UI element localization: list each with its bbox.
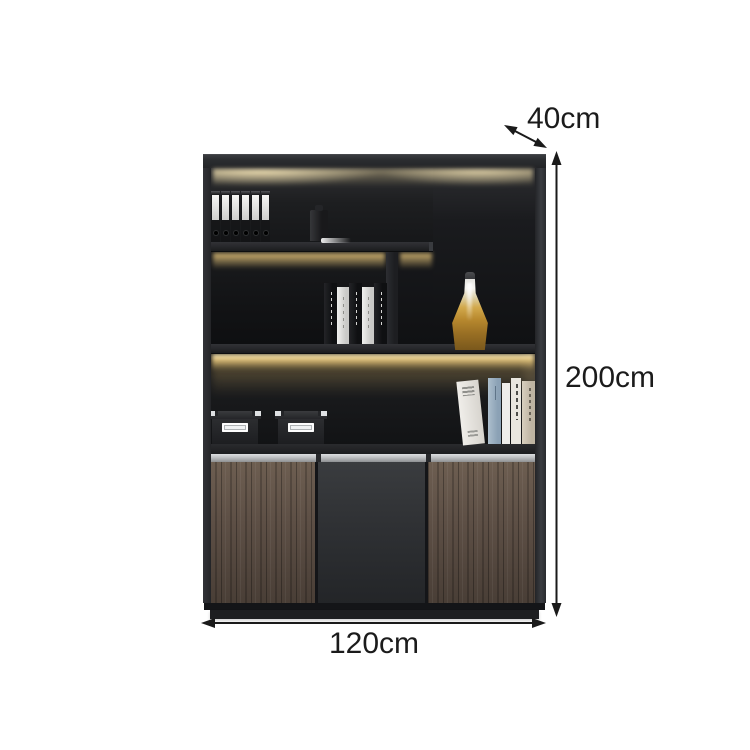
rail-gap [316,454,321,462]
book-spine [362,287,374,344]
book-spine [374,283,387,344]
shelf-light-reflection [321,238,351,243]
cabinet-left-frame [203,168,211,603]
depth-dimension-label: 40cm [527,104,600,134]
storage-box-lid [275,411,327,419]
binder-spine [241,191,250,242]
cabinet-plinth [210,610,539,619]
book-spine [502,383,510,444]
door-panel-wood-right [428,462,541,603]
led-strip-top [213,169,533,187]
cabinet-right-frame [535,168,546,603]
jar-decor [310,210,328,241]
binder-spine [261,191,270,242]
led-strip-middle-left [213,253,385,269]
door-handle-rail [206,454,543,462]
book-spine [522,381,535,444]
door-panel-dark-center [318,462,425,603]
middle-books [324,282,388,344]
lower-shelf-board [203,444,546,454]
storage-box [209,411,261,444]
right-books [465,376,536,444]
height-arrow-icon [552,151,562,617]
height-dimension-label: 200cm [565,363,655,393]
width-dimension-label: 120cm [329,629,419,659]
storage-box-label [288,423,314,432]
storage-box [275,411,327,444]
binder-spine [221,191,230,242]
rail-gap [426,454,431,462]
cabinet-base-band [204,603,545,610]
display-cabinet [203,154,546,619]
storage-box-label [222,423,248,432]
book-spine [324,283,337,344]
binder-spine [251,191,260,242]
storage-box-lid [209,411,261,419]
binder-row [211,191,271,242]
binder-spine [211,191,220,242]
decanter-flask [451,279,489,350]
binder-spine [231,191,240,242]
book-spine [337,287,349,344]
led-strip-middle-right [400,253,432,269]
gold-decanter [451,272,489,350]
book-spine [349,283,362,344]
product-dimension-diagram: 40cm 200cm 120cm [0,0,750,750]
lower-cabinet-doors [203,462,546,603]
door-panel-wood-left [206,462,315,603]
book-spine [488,378,501,444]
cabinet-top-panel [203,154,546,168]
upper-shelf-board [203,242,433,252]
middle-shelf-board [207,344,543,354]
book-spine [511,378,521,444]
